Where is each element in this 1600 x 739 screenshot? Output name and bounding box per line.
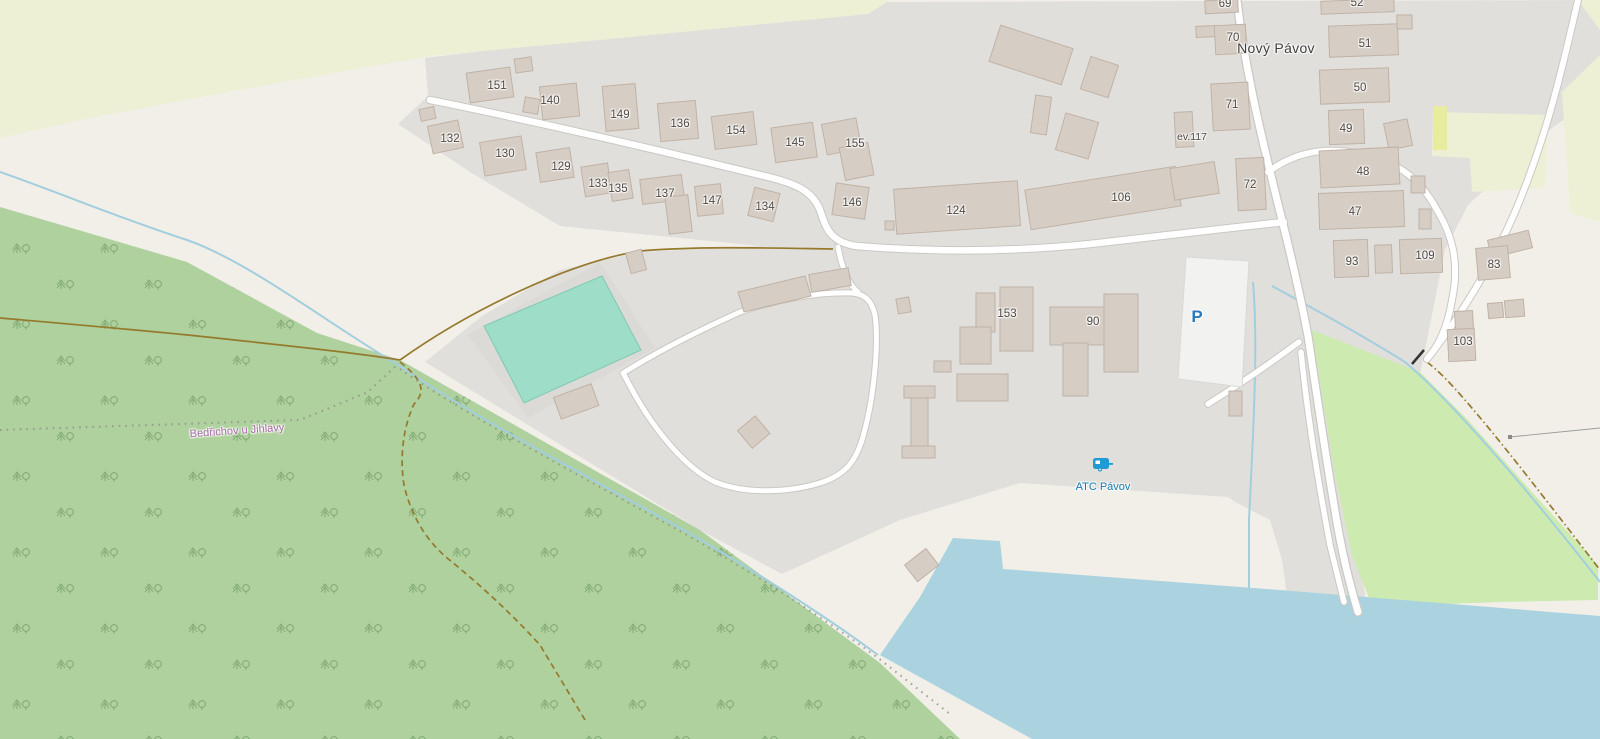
allotment-patch <box>1433 106 1447 150</box>
parking-lot <box>1178 257 1249 387</box>
caravan-icon[interactable] <box>1092 457 1114 473</box>
map-canvas[interactable]: Nový Pávov Bedřichov u Jihlavy ATC Pávov… <box>0 0 1600 739</box>
map-layers <box>0 0 1600 739</box>
